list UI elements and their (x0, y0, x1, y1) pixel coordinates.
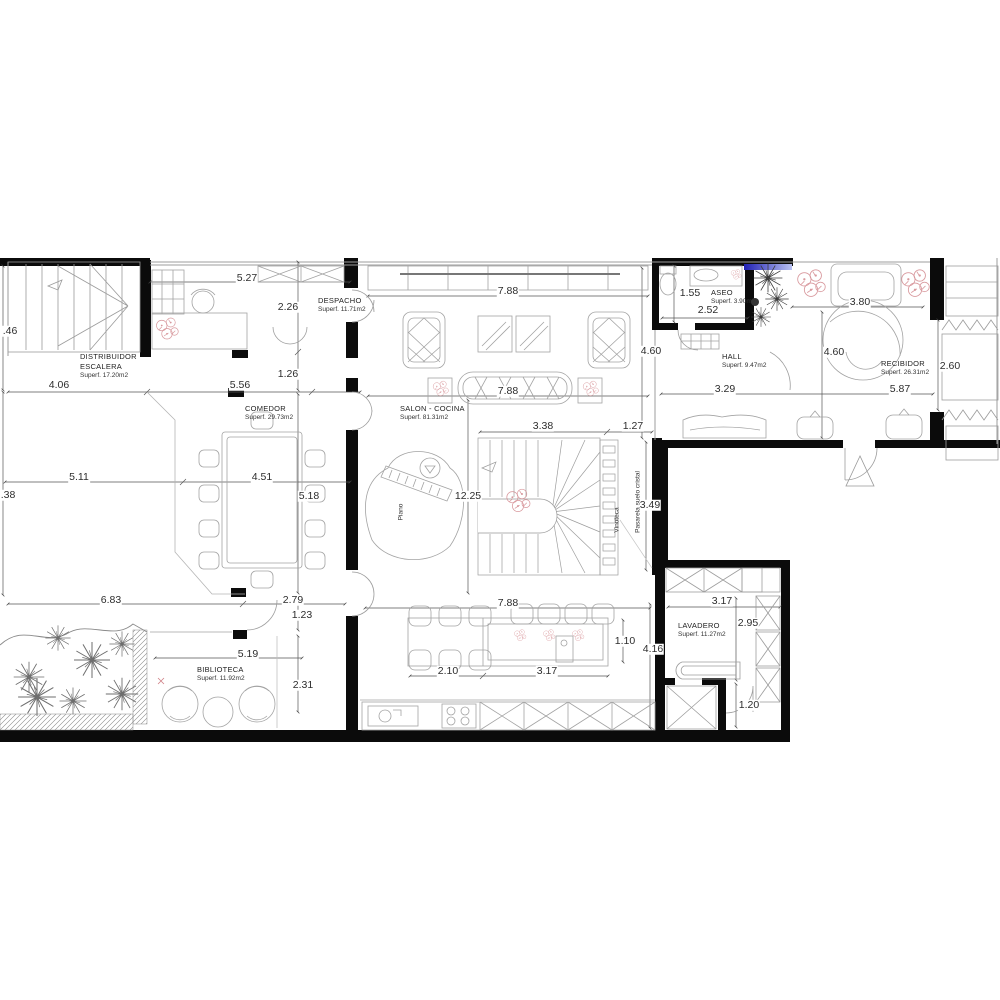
dimension-label: 7.88 (497, 598, 519, 609)
dimension-label: 1.10 (614, 636, 636, 647)
dimension-label: .38 (0, 490, 16, 501)
room-name: LAVADERO (678, 621, 726, 631)
room-area: Superf. 81.31m2 (400, 414, 465, 422)
dimension-label: 2.52 (697, 305, 719, 316)
dimension-label: 7.88 (497, 286, 519, 297)
room-label: RECIBIDORSuperf. 26.31m2 (881, 359, 929, 377)
dimension-label: 2.26 (277, 302, 299, 313)
room-label: COMEDORSuperf. 29.73m2 (245, 404, 293, 422)
room-label: BIBLIOTECASuperf. 11.92m2 (197, 665, 245, 683)
annotation-label: Pasarela suelo cristal (635, 471, 642, 533)
dimension-label: 1.27 (622, 421, 644, 432)
annotation-label: Piano (398, 504, 405, 521)
dimension-label: 4.51 (251, 472, 273, 483)
room-name: RECIBIDOR (881, 359, 929, 369)
dimension-label: 3.17 (536, 666, 558, 677)
dimension-label: 2.10 (437, 666, 459, 677)
room-name: DISTRIBUIDOR (80, 352, 137, 362)
dimension-label: 5.27 (236, 273, 258, 284)
room-label: ASEOSuperf. 3.90m2 (711, 288, 755, 306)
dimension-label: 3.17 (711, 596, 733, 607)
dimension-label: 3.29 (714, 384, 736, 395)
dimension-label: 4.16 (642, 644, 664, 655)
room-name: DESPACHO (318, 296, 366, 306)
room-label: HALLSuperf. 9.47m2 (722, 352, 766, 370)
room-name: COMEDOR (245, 404, 293, 414)
dimension-label: 2.60 (939, 361, 961, 372)
room-label: DISTRIBUIDORESCALERASuperf. 17.20m2 (80, 352, 137, 380)
room-name: BIBLIOTECA (197, 665, 245, 675)
dimension-label: 4.06 (48, 380, 70, 391)
dimension-label: 5.11 (68, 472, 90, 483)
dimension-label: 3.80 (849, 297, 871, 308)
dimension-label: 4.60 (640, 346, 662, 357)
room-name: ESCALERA (80, 362, 137, 372)
dimension-label: 12.25 (454, 491, 482, 502)
room-label: LAVADEROSuperf. 11.27m2 (678, 621, 726, 639)
annotation-label: Vinoteca (614, 507, 621, 532)
dimension-label: 2.31 (292, 680, 314, 691)
dimension-label: 6.83 (100, 595, 122, 606)
dimension-label: 5.87 (889, 384, 911, 395)
room-area: Superf. 3.90m2 (711, 298, 755, 306)
dimension-label: 2.79 (282, 595, 304, 606)
dimension-label: 5.19 (237, 649, 259, 660)
dimension-label: 1.23 (291, 610, 313, 621)
labels-layer: .465.272.267.881.552.523.804.604.602.601… (0, 0, 1000, 1000)
room-area: Superf. 26.31m2 (881, 369, 929, 377)
room-name: HALL (722, 352, 766, 362)
room-area: Superf. 9.47m2 (722, 362, 766, 370)
floor-plan-canvas: .465.272.267.881.552.523.804.604.602.601… (0, 0, 1000, 1000)
room-area: Superf. 17.20m2 (80, 372, 137, 380)
dimension-label: 5.18 (298, 491, 320, 502)
room-name: ASEO (711, 288, 755, 298)
dimension-label: 1.26 (277, 369, 299, 380)
dimension-label: 7.88 (497, 386, 519, 397)
room-area: Superf. 11.71m2 (318, 306, 366, 314)
room-label: DESPACHOSuperf. 11.71m2 (318, 296, 366, 314)
dimension-label: .46 (2, 326, 19, 337)
room-area: Superf. 29.73m2 (245, 414, 293, 422)
room-area: Superf. 11.27m2 (678, 631, 726, 639)
room-name: SALON - COCINA (400, 404, 465, 414)
dimension-label: 3.49 (639, 500, 661, 511)
dimension-label: 1.20 (738, 700, 760, 711)
dimension-label: 4.60 (823, 347, 845, 358)
dimension-label: 5.56 (229, 380, 251, 391)
dimension-label: 2.95 (737, 618, 759, 629)
room-label: SALON - COCINASuperf. 81.31m2 (400, 404, 465, 422)
room-area: Superf. 11.92m2 (197, 675, 245, 683)
dimension-label: 1.55 (679, 288, 701, 299)
dimension-label: 3.38 (532, 421, 554, 432)
